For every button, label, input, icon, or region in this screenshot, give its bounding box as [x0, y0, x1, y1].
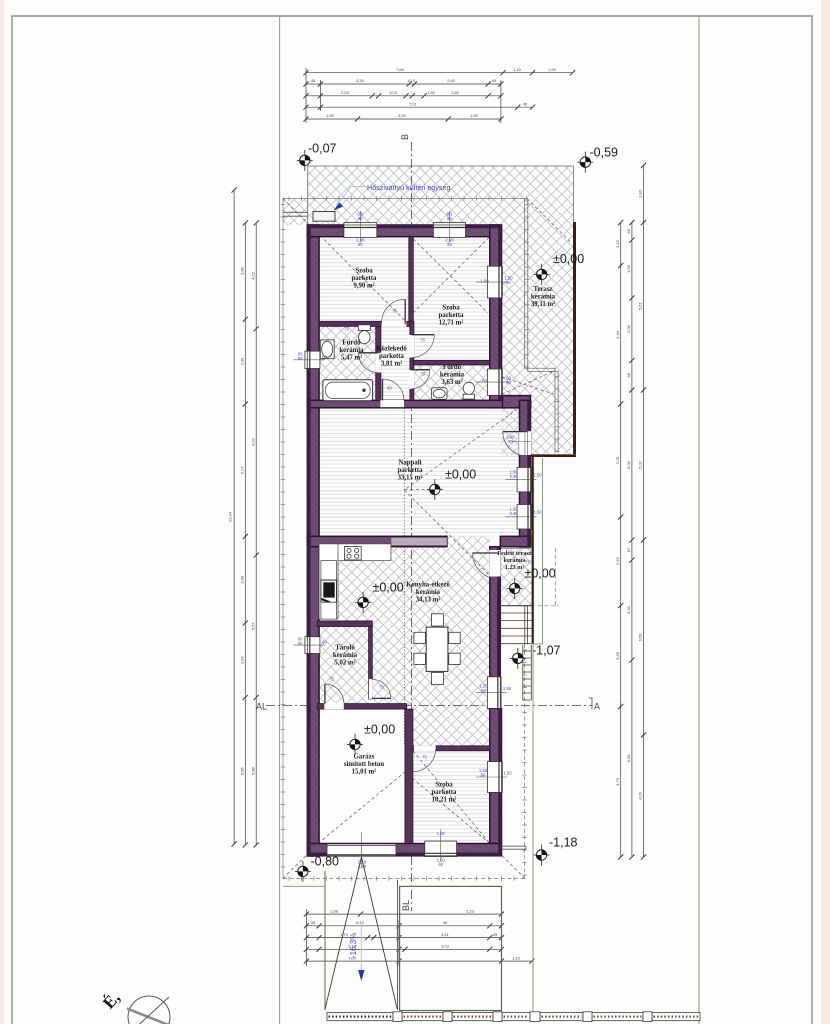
svg-text:2,15: 2,15 [615, 239, 620, 248]
svg-text:3,78: 3,78 [615, 456, 620, 465]
svg-text:1,50: 1,50 [427, 90, 436, 95]
svg-text:-0,07: -0,07 [308, 142, 337, 156]
svg-text:7,21: 7,21 [409, 101, 418, 106]
svg-text:5,88: 5,88 [250, 766, 255, 775]
svg-text:10,5: 10,5 [407, 78, 416, 83]
svg-text:6,50: 6,50 [638, 633, 643, 642]
svg-text:-1,07: -1,07 [532, 644, 561, 658]
svg-text:5,85: 5,85 [240, 766, 245, 775]
svg-text:±0,00: ±0,00 [364, 723, 395, 737]
svg-text:1,80: 1,80 [470, 113, 479, 118]
svg-text:60: 60 [322, 640, 327, 645]
svg-text:2,40: 2,40 [510, 511, 519, 516]
svg-text:5,02: 5,02 [638, 460, 643, 469]
svg-text:Fürdőkerámia3,63 m²: Fürdőkerámia3,63 m² [440, 364, 465, 386]
svg-text:-0,80: -0,80 [311, 855, 340, 869]
svg-text:±0,00: ±0,00 [553, 252, 584, 266]
svg-text:2,96: 2,96 [240, 656, 245, 665]
svg-text:90: 90 [447, 216, 452, 221]
svg-text:3,20: 3,20 [398, 113, 407, 118]
svg-text:3,40: 3,40 [240, 575, 245, 584]
svg-text:90: 90 [298, 641, 303, 646]
svg-text:±0,00: ±0,00 [373, 581, 404, 595]
svg-text:90: 90 [506, 380, 511, 385]
svg-text:Tárolókerámia5,02 m²: Tárolókerámia5,02 m² [333, 644, 358, 666]
svg-text:B: B [400, 134, 410, 140]
svg-text:3,30: 3,30 [356, 78, 365, 83]
svg-text:90: 90 [438, 862, 443, 867]
svg-text:90: 90 [358, 216, 363, 221]
svg-text:5,27: 5,27 [240, 466, 245, 475]
svg-text:2,80: 2,80 [447, 78, 456, 83]
svg-text:90: 90 [506, 280, 511, 285]
svg-text:1,50: 1,50 [437, 831, 446, 836]
svg-text:9,02: 9,02 [250, 437, 255, 446]
svg-text:75: 75 [420, 372, 425, 377]
svg-text:90: 90 [508, 439, 513, 444]
svg-text:2,80: 2,80 [451, 90, 460, 95]
svg-text:60: 60 [482, 379, 487, 384]
svg-text:A: A [594, 702, 600, 712]
svg-text:90: 90 [447, 242, 452, 247]
svg-text:45: 45 [493, 932, 498, 937]
svg-text:3,36: 3,36 [240, 357, 245, 366]
svg-text:98: 98 [626, 372, 631, 377]
svg-text:BL: BL [401, 900, 411, 911]
svg-text:4,21: 4,21 [441, 932, 450, 937]
svg-text:75: 75 [329, 677, 334, 682]
svg-text:±0,00: ±0,00 [525, 567, 556, 581]
svg-text:5,67: 5,67 [250, 622, 255, 631]
svg-text:1,73: 1,73 [340, 932, 349, 937]
svg-text:3,03: 3,03 [441, 944, 450, 949]
svg-text:75: 75 [525, 560, 530, 565]
svg-text:±0,00: ±0,00 [445, 468, 476, 482]
svg-text:75: 75 [420, 338, 425, 343]
svg-text:5,10: 5,10 [356, 920, 365, 925]
svg-text:1,50: 1,50 [533, 510, 542, 515]
svg-text:5,61: 5,61 [638, 302, 643, 311]
svg-text:22,04: 22,04 [228, 511, 233, 522]
svg-text:90: 90 [298, 356, 303, 361]
svg-text:Teraszkerámia39,11 m²: Teraszkerámia39,11 m² [531, 286, 556, 308]
svg-text:2,53: 2,53 [341, 90, 350, 95]
svg-text:60: 60 [626, 228, 631, 233]
svg-text:1,95: 1,95 [626, 264, 631, 273]
svg-text:10,5: 10,5 [389, 90, 398, 95]
svg-text:90: 90 [358, 242, 363, 247]
svg-text:45: 45 [443, 920, 448, 925]
svg-text:Fürdőkerámia5,47 m²: Fürdőkerámia5,47 m² [339, 339, 364, 361]
svg-text:6,60: 6,60 [626, 754, 631, 763]
svg-text:1,50: 1,50 [480, 279, 489, 284]
svg-text:Hőszivattyú kültéri egység: Hőszivattyú kültéri egység [367, 183, 451, 192]
svg-text:45: 45 [523, 101, 528, 106]
svg-text:3,88: 3,88 [240, 266, 245, 275]
svg-text:3,30: 3,30 [626, 605, 631, 614]
svg-text:7,66: 7,66 [396, 67, 405, 72]
svg-text:1,50: 1,50 [503, 686, 512, 691]
svg-text:1,10: 1,10 [513, 67, 522, 72]
svg-text:2,23: 2,23 [466, 908, 475, 913]
svg-text:AL: AL [256, 702, 267, 712]
svg-text:4,64: 4,64 [615, 330, 620, 339]
svg-text:1,98: 1,98 [330, 908, 339, 913]
svg-text:1,50: 1,50 [533, 473, 542, 478]
svg-text:75: 75 [379, 685, 384, 690]
svg-text:1,50: 1,50 [503, 771, 512, 776]
svg-text:2,08: 2,08 [626, 325, 631, 334]
svg-text:45: 45 [311, 78, 316, 83]
svg-text:5,00: 5,00 [626, 460, 631, 469]
svg-text:75: 75 [422, 755, 427, 760]
svg-text:45: 45 [311, 920, 316, 925]
svg-text:-0,59: -0,59 [590, 146, 619, 160]
svg-text:1,80: 1,80 [326, 113, 335, 118]
svg-text:90: 90 [481, 773, 486, 778]
svg-text:45: 45 [492, 78, 497, 83]
svg-text:2,40: 2,40 [510, 474, 519, 479]
svg-text:1,90: 1,90 [548, 67, 557, 72]
svg-text:Nappaliparketta33,15 m²: Nappaliparketta33,15 m² [398, 459, 424, 481]
svg-text:-1,18: -1,18 [549, 836, 578, 850]
svg-text:1,90: 1,90 [638, 189, 643, 198]
svg-text:67: 67 [626, 547, 631, 552]
svg-text:4,22: 4,22 [250, 271, 255, 280]
svg-text:4,76: 4,76 [615, 777, 620, 786]
svg-text:1,10: 1,10 [512, 955, 521, 960]
svg-text:90: 90 [481, 688, 486, 693]
svg-text:4,06: 4,06 [638, 791, 643, 800]
svg-text:3,38: 3,38 [615, 651, 620, 660]
svg-text:60: 60 [322, 355, 327, 360]
svg-text:75: 75 [344, 327, 349, 332]
svg-text:75: 75 [392, 309, 397, 314]
svg-text:-16,3%: -16,3% [349, 933, 358, 958]
svg-text:90: 90 [387, 386, 392, 391]
svg-text:2,96: 2,96 [615, 557, 620, 566]
